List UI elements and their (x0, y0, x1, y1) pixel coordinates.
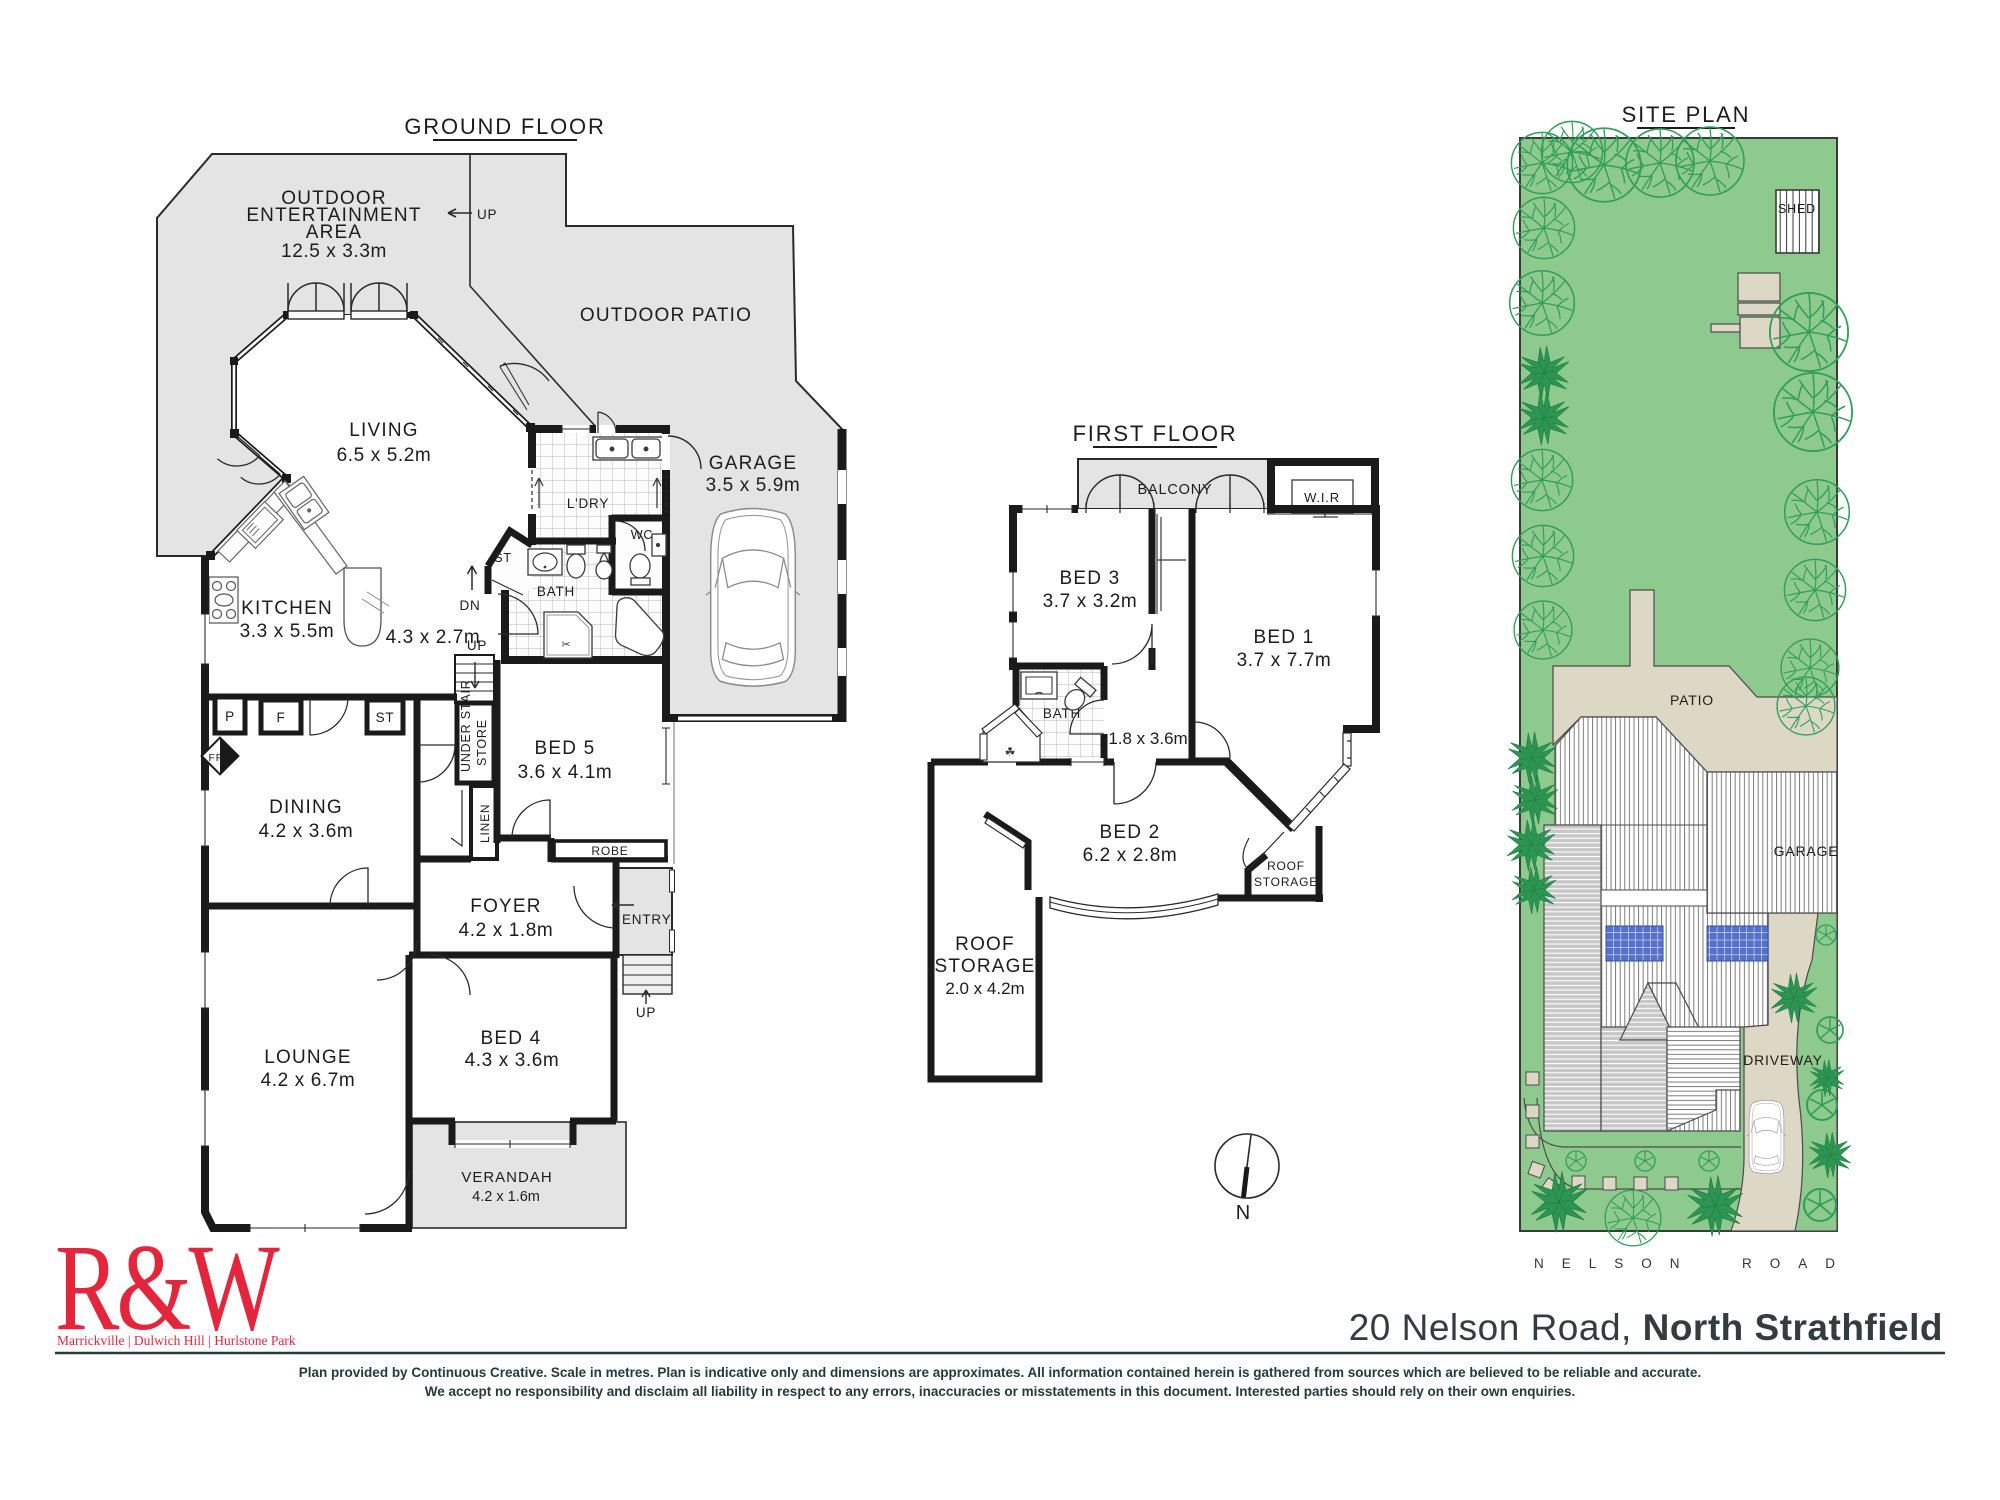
svg-text:KITCHEN: KITCHEN (241, 598, 333, 619)
svg-text:OUTDOOR PATIO: OUTDOOR PATIO (580, 305, 752, 326)
svg-text:12.5 x 3.3m: 12.5 x 3.3m (281, 241, 387, 262)
svg-text:STORAGE: STORAGE (1254, 875, 1318, 889)
svg-text:DN: DN (459, 598, 480, 613)
svg-text:1.8 x 3.6m: 1.8 x 3.6m (1108, 729, 1187, 748)
svg-text:WC: WC (631, 528, 653, 542)
svg-text:ST: ST (376, 710, 395, 725)
svg-text:DRIVEWAY: DRIVEWAY (1743, 1052, 1823, 1068)
svg-text:4.2 x 3.6m: 4.2 x 3.6m (259, 821, 354, 842)
svg-text:DINING: DINING (269, 797, 343, 818)
svg-text:3.3 x 5.5m: 3.3 x 5.5m (240, 621, 335, 642)
svg-text:ST: ST (494, 551, 512, 565)
svg-text:STORAGE: STORAGE (935, 956, 1036, 977)
svg-text:UP: UP (467, 638, 487, 653)
svg-text:BED 5: BED 5 (535, 738, 596, 759)
svg-text:STORE: STORE (475, 719, 489, 766)
svg-text:Plan provided by Continuous Cr: Plan provided by Continuous Creative. Sc… (299, 1365, 1701, 1380)
svg-text:UP: UP (477, 207, 497, 222)
svg-text:P: P (225, 709, 235, 724)
svg-text:BED 4: BED 4 (481, 1028, 542, 1049)
svg-text:UNDER STAIR: UNDER STAIR (459, 679, 473, 772)
svg-text:BED 3: BED 3 (1060, 568, 1121, 589)
svg-text:ENTRY: ENTRY (622, 912, 672, 927)
svg-text:20 Nelson Road, North Strathfi: 20 Nelson Road, North Strathfield (1349, 1307, 1943, 1348)
svg-text:BED 1: BED 1 (1254, 627, 1315, 648)
svg-text:ROOF: ROOF (955, 934, 1015, 955)
svg-text:F: F (276, 710, 285, 725)
svg-text:3.7 x 3.2m: 3.7 x 3.2m (1043, 591, 1138, 612)
svg-text:LOUNGE: LOUNGE (264, 1047, 351, 1068)
svg-text:ROOF: ROOF (1267, 859, 1305, 873)
svg-text:4.2 x 6.7m: 4.2 x 6.7m (261, 1070, 356, 1091)
svg-text:W.I.R: W.I.R (1304, 490, 1340, 505)
svg-text:NELSON: NELSON (1534, 1256, 1698, 1271)
svg-text:☘: ☘ (1005, 745, 1016, 759)
svg-text:SHED: SHED (1778, 202, 1816, 216)
svg-text:3.6 x 4.1m: 3.6 x 4.1m (518, 762, 613, 783)
svg-text:LINEN: LINEN (478, 804, 492, 843)
svg-text:BATH: BATH (537, 584, 575, 599)
svg-text:UP: UP (636, 1005, 656, 1020)
svg-text:4.2 x 1.8m: 4.2 x 1.8m (459, 920, 554, 941)
svg-text:SITE PLAN: SITE PLAN (1622, 102, 1751, 127)
svg-text:Marrickville | Dulwich Hill |: Marrickville | Dulwich Hill | Hurlstone … (57, 1333, 296, 1348)
svg-text:GROUND FLOOR: GROUND FLOOR (404, 114, 605, 139)
svg-text:3.7 x 7.7m: 3.7 x 7.7m (1237, 650, 1332, 671)
svg-text:FOYER: FOYER (470, 896, 541, 917)
svg-text:We accept no responsibility an: We accept no responsibility and disclaim… (425, 1384, 1576, 1399)
svg-text:ROBE: ROBE (591, 844, 628, 858)
svg-text:ROAD: ROAD (1742, 1256, 1853, 1271)
svg-text:✂: ✂ (561, 639, 570, 651)
svg-text:3.5 x 5.9m: 3.5 x 5.9m (706, 475, 801, 496)
svg-text:AREA: AREA (306, 222, 363, 243)
svg-text:BED 2: BED 2 (1100, 822, 1161, 843)
svg-text:4.3 x 3.6m: 4.3 x 3.6m (465, 1050, 560, 1071)
svg-text:PATIO: PATIO (1670, 692, 1714, 708)
svg-text:6.2 x 2.8m: 6.2 x 2.8m (1083, 845, 1178, 866)
svg-text:LIVING: LIVING (349, 420, 419, 441)
svg-text:FP: FP (208, 752, 223, 764)
svg-text:L'DRY: L'DRY (567, 496, 609, 511)
svg-text:GARAGE: GARAGE (709, 453, 798, 474)
svg-text:2.0 x 4.2m: 2.0 x 4.2m (945, 979, 1024, 998)
svg-text:GARAGE: GARAGE (1774, 843, 1839, 859)
svg-text:6.5 x 5.2m: 6.5 x 5.2m (337, 445, 432, 466)
svg-text:FIRST FLOOR: FIRST FLOOR (1073, 421, 1238, 446)
svg-text:N: N (1236, 1202, 1250, 1224)
svg-text:VERANDAH: VERANDAH (461, 1169, 552, 1186)
svg-text:4.2 x 1.6m: 4.2 x 1.6m (472, 1189, 540, 1205)
